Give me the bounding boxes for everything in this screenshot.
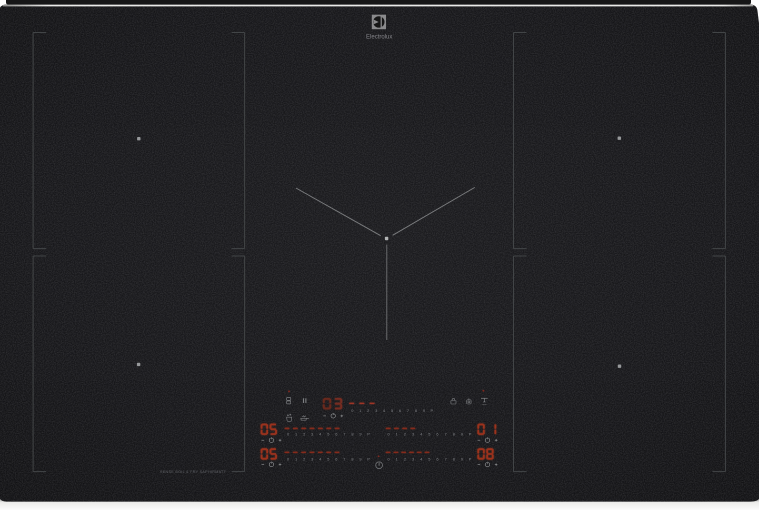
svg-text:P: P	[430, 408, 433, 413]
svg-text:1: 1	[295, 456, 297, 461]
svg-text:2: 2	[303, 456, 305, 461]
svg-text:2: 2	[303, 431, 305, 436]
svg-text:7: 7	[343, 456, 345, 461]
svg-text:7: 7	[445, 456, 447, 461]
svg-text:1: 1	[396, 431, 398, 436]
svg-text:P: P	[367, 431, 370, 436]
svg-text:8: 8	[453, 431, 455, 436]
svg-text:9: 9	[423, 408, 425, 413]
svg-text:5: 5	[327, 456, 329, 461]
svg-text:9: 9	[461, 431, 463, 436]
svg-text:3: 3	[412, 456, 414, 461]
svg-text:2: 2	[404, 456, 406, 461]
svg-text:8: 8	[351, 456, 353, 461]
svg-text:6: 6	[335, 431, 337, 436]
svg-text:2: 2	[367, 408, 369, 413]
svg-text:Electrolux: Electrolux	[366, 34, 392, 40]
svg-text:P: P	[469, 456, 472, 461]
svg-text:7: 7	[343, 431, 345, 436]
svg-text:9: 9	[461, 456, 463, 461]
svg-text:5: 5	[391, 408, 393, 413]
svg-text:8: 8	[351, 431, 353, 436]
svg-text:6: 6	[335, 456, 337, 461]
svg-text:7: 7	[445, 431, 447, 436]
svg-text:1: 1	[295, 431, 297, 436]
svg-text:3: 3	[375, 408, 377, 413]
svg-text:P: P	[469, 431, 472, 436]
svg-text:1: 1	[359, 408, 361, 413]
svg-text:3: 3	[311, 431, 313, 436]
svg-text:2: 2	[404, 431, 406, 436]
svg-text:9: 9	[359, 456, 361, 461]
svg-text:1: 1	[396, 456, 398, 461]
svg-text:6: 6	[436, 456, 438, 461]
svg-text:3: 3	[412, 431, 414, 436]
svg-text:6: 6	[436, 431, 438, 436]
svg-text:6: 6	[399, 408, 401, 413]
svg-text:P: P	[367, 456, 370, 461]
svg-text:5: 5	[428, 456, 430, 461]
svg-text:3: 3	[311, 456, 313, 461]
svg-text:9: 9	[359, 431, 361, 436]
svg-text:5: 5	[327, 431, 329, 436]
svg-text:7: 7	[407, 408, 409, 413]
svg-text:8: 8	[453, 456, 455, 461]
svg-text:8: 8	[415, 408, 417, 413]
svg-text:SENSE BOIL & FRY SAPHIRMATT: SENSE BOIL & FRY SAPHIRMATT	[160, 470, 227, 474]
svg-text:5: 5	[428, 431, 430, 436]
